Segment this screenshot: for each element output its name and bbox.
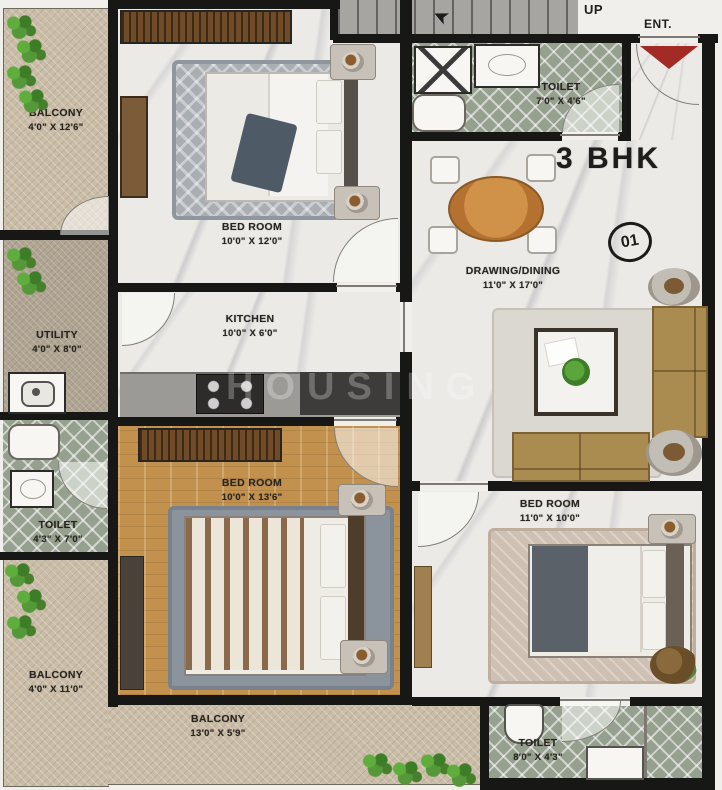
nightstand-icon <box>648 514 696 544</box>
wall <box>108 695 412 705</box>
wardrobe-icon <box>414 566 432 668</box>
sofa-back-line <box>514 468 648 470</box>
wall <box>108 0 340 9</box>
room-name: DRAWING/DINING <box>430 264 596 279</box>
room-dims: 10'0" X 6'0" <box>180 327 320 340</box>
nightstand-icon <box>334 186 380 220</box>
room-name: TOILET <box>8 518 108 533</box>
pillow <box>642 602 666 650</box>
dining-chair-icon <box>430 156 460 184</box>
entrance-label: ENT. <box>644 17 672 31</box>
room-label-drawing-dining: DRAWING/DINING 11'0" X 17'0" <box>430 264 596 292</box>
room-dims: 4'3" X 7'0" <box>8 533 108 546</box>
wall <box>396 417 412 426</box>
sink-basin <box>20 479 46 499</box>
plant-icon <box>14 38 48 66</box>
room-name: BED ROOM <box>172 476 332 491</box>
watermark: HOUSING <box>226 366 487 409</box>
headboard <box>666 542 684 656</box>
plan-title: 3 BHK <box>556 142 661 176</box>
room-dims: 4'0" X 12'6" <box>6 121 106 134</box>
plant-icon <box>4 614 38 642</box>
room-dims: 10'0" X 13'6" <box>172 491 332 504</box>
decor-icon <box>664 278 684 294</box>
room-label-bedroom-right: BED ROOM 11'0" X 10'0" <box>470 497 630 525</box>
shower-tray-icon <box>8 424 60 460</box>
wall <box>412 481 420 491</box>
dining-chair-icon <box>526 154 556 182</box>
plant-icon <box>444 762 478 790</box>
room-name: BALCONY <box>148 712 288 727</box>
sink-basin <box>488 54 526 76</box>
nightstand-icon <box>330 44 376 80</box>
room-name: KITCHEN <box>180 312 320 327</box>
room-label-bedroom-top: BED ROOM 10'0" X 12'0" <box>172 220 332 248</box>
door-threshold <box>334 419 397 421</box>
bathtub-icon <box>412 94 466 132</box>
room-label-toilet-left: TOILET 4'3" X 7'0" <box>8 518 108 546</box>
table-plant-icon <box>562 358 590 386</box>
room-name: BED ROOM <box>172 220 332 235</box>
sofa-icon <box>512 432 650 482</box>
wall <box>488 481 712 491</box>
room-dims: 4'0" X 8'0" <box>7 343 107 356</box>
wall <box>400 0 412 292</box>
room-dims: 11'0" X 10'0" <box>470 512 630 525</box>
wardrobe-icon <box>120 10 292 44</box>
up-label: UP <box>584 2 603 17</box>
bed-duvet <box>588 546 642 652</box>
decor-tray-icon <box>353 647 375 667</box>
room-dims: 13'0" X 5'9" <box>148 727 288 740</box>
side-table-icon <box>646 430 702 476</box>
room-label-toilet-top: TOILET 7'0" X 4'6" <box>505 80 617 108</box>
decor-tray-icon <box>351 490 373 510</box>
plant-icon <box>2 562 36 590</box>
plant-icon <box>14 588 48 616</box>
wall <box>108 0 118 707</box>
sink-icon <box>10 470 54 508</box>
room-dims: 8'0" X 4'3" <box>480 751 596 764</box>
wall <box>108 283 337 292</box>
door-threshold <box>560 134 620 136</box>
plant-icon <box>14 270 48 298</box>
bed-striped-duvet <box>186 518 304 670</box>
side-table-icon <box>648 268 700 306</box>
shower-partition <box>644 706 647 778</box>
washer-drum <box>32 388 40 396</box>
room-name: BED ROOM <box>470 497 630 512</box>
wall <box>0 552 110 560</box>
room-dims: 7'0" X 4'6" <box>505 95 617 108</box>
room-label-utility: UTILITY 4'0" X 8'0" <box>7 328 107 356</box>
decor-tray-icon <box>346 193 368 213</box>
floor-plant-icon <box>650 646 698 684</box>
nightstand-icon <box>340 640 388 674</box>
room-name: TOILET <box>505 80 617 95</box>
decor-tray-icon <box>342 52 364 72</box>
room-dims: 11'0" X 17'0" <box>430 279 596 292</box>
sofa-cushion-line <box>654 370 706 372</box>
unit-number: 01 <box>620 232 641 253</box>
plant-icon <box>16 88 50 116</box>
coffee-table-icon <box>534 328 618 416</box>
door-threshold <box>336 285 397 287</box>
wardrobe-icon <box>138 428 282 462</box>
dresser-icon <box>120 96 148 198</box>
dining-chair-icon <box>428 226 458 254</box>
wall <box>108 417 334 426</box>
drape-icon <box>120 556 144 690</box>
room-dims: 4'0" X 11'0" <box>6 683 106 696</box>
wall <box>400 283 412 302</box>
sofa-icon <box>652 306 708 438</box>
bed-blanket <box>532 546 588 652</box>
washing-machine-icon <box>8 372 66 414</box>
shower-icon <box>414 46 472 94</box>
wall <box>630 697 712 706</box>
room-label-bedroom-middle: BED ROOM 10'0" X 13'6" <box>172 476 332 504</box>
dining-table-icon <box>448 176 544 242</box>
room-label-toilet-bottom: TOILET 8'0" X 4'3" <box>480 736 596 764</box>
room-name: UTILITY <box>7 328 107 343</box>
pillow <box>320 524 346 588</box>
door-threshold <box>403 302 405 352</box>
decor-icon <box>663 443 685 461</box>
room-label-kitchen: KITCHEN 10'0" X 6'0" <box>180 312 320 340</box>
sofa-back-line <box>694 308 696 436</box>
pillow <box>316 130 342 174</box>
pillow <box>316 80 342 124</box>
entrance-threshold <box>638 36 700 38</box>
stairs <box>338 0 578 36</box>
room-label-balcony-bottom-left: BALCONY 4'0" X 11'0" <box>6 668 106 696</box>
room-label-balcony-bottom: BALCONY 13'0" X 5'9" <box>148 712 288 740</box>
sofa-cushion-line <box>579 434 581 480</box>
door-threshold <box>420 483 488 485</box>
plant-icon <box>360 752 394 780</box>
headboard <box>344 70 358 200</box>
wall <box>622 34 631 140</box>
floor-plan: ➤ BED ROOM 10'0" X 12'0" <box>0 0 722 790</box>
pillow <box>642 550 666 598</box>
room-dims: 10'0" X 12'0" <box>172 235 332 248</box>
decor-tray-icon <box>661 519 683 539</box>
room-name: TOILET <box>480 736 596 751</box>
nightstand-icon <box>338 484 386 516</box>
wall <box>400 132 562 141</box>
room-name: BALCONY <box>6 668 106 683</box>
